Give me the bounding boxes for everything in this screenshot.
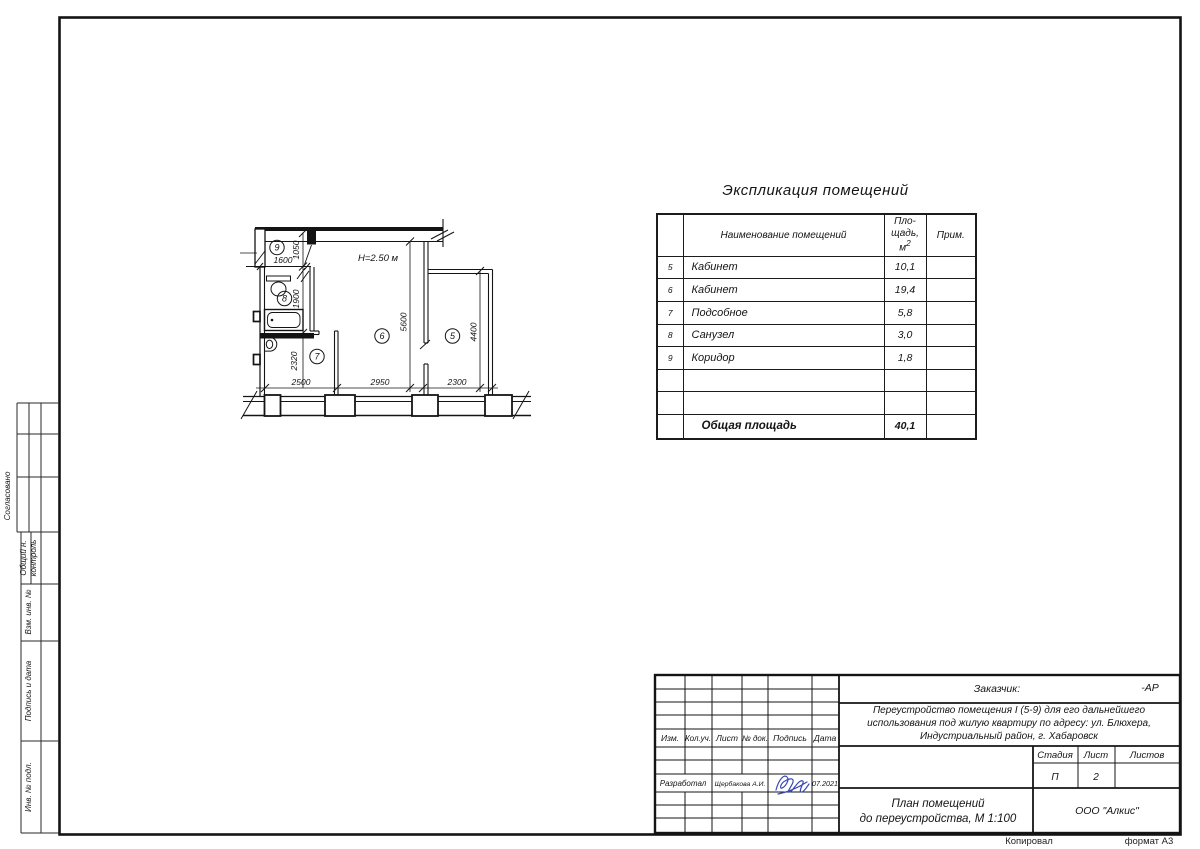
- room-label-9: 9: [274, 243, 279, 253]
- total-area: 40,1: [884, 414, 926, 439]
- general-control-label-2: контроль: [29, 540, 38, 577]
- sheet-linework: Согласовано Общий н. контроль Взм. инв. …: [0, 0, 1200, 849]
- title-block: Заказчик: -АР Переустройство помещения I…: [655, 675, 1180, 833]
- sheets-label: Листов: [1129, 750, 1165, 761]
- dim-2500: 2500: [291, 377, 311, 387]
- project-line-2: использования под жилую квартиру по адре…: [867, 718, 1151, 729]
- table-row: [657, 391, 976, 414]
- header-note-cell: Прим.: [926, 214, 976, 256]
- floor-plan: 9 8 7 6 5 Н=2.50 м 1600 2500 2950 2300 1…: [238, 208, 538, 428]
- door-leaf: [304, 245, 312, 266]
- replace-inv-label: Взм. инв. №: [24, 589, 33, 634]
- dim-2320: 2320: [289, 351, 299, 371]
- drawing-sheet: Согласовано Общий н. контроль Взм. инв. …: [0, 0, 1200, 849]
- company-name: ООО "Алкис": [1075, 805, 1140, 817]
- explication-title: Экспликация помещений: [656, 182, 975, 199]
- height-note: Н=2.50 м: [358, 253, 399, 264]
- col-ndok: № док.: [742, 734, 768, 743]
- dim-2950: 2950: [370, 377, 390, 387]
- col-list: Лист: [715, 733, 738, 743]
- project-line-3: Индустриальный район, г. Хабаровск: [920, 730, 1099, 742]
- break-mark-top: [431, 230, 448, 239]
- dim-1900: 1900: [291, 289, 301, 308]
- room-label-5: 5: [450, 331, 456, 341]
- dim-2300: 2300: [447, 377, 467, 387]
- table-row: 7 Подсобное 5,8: [657, 301, 976, 324]
- wall-stub: [308, 231, 316, 244]
- doc-title-line-1: План помещений: [891, 798, 985, 810]
- col-podpis: Подпись: [773, 733, 807, 743]
- wall-left-upper: [255, 229, 265, 267]
- dim-4400: 4400: [469, 322, 479, 341]
- wall-pilaster: [254, 312, 261, 322]
- developed-name: Щербакова А.И.: [715, 780, 766, 788]
- total-row: Общая площадь 40,1: [657, 414, 976, 439]
- room-label-7: 7: [314, 352, 320, 362]
- inv-orig-label: Инв. № подл.: [24, 762, 33, 812]
- wall-pier: [265, 395, 281, 416]
- total-label: Общая площадь: [683, 414, 884, 439]
- header-num-cell: [657, 214, 683, 256]
- header-area-cell: Пло- щадь, м2: [884, 214, 926, 256]
- table-row: 6 Кабинет 19,4: [657, 278, 976, 301]
- customer-value: -АР: [1141, 682, 1159, 694]
- wall-pilaster: [254, 355, 261, 365]
- room-label-6: 6: [379, 331, 384, 341]
- col-izm: Изм.: [661, 733, 679, 743]
- sign-date-label: Подпись и дата: [24, 660, 33, 721]
- customer-label: Заказчик:: [974, 683, 1020, 695]
- explication-header-row: Наименование помещений Пло- щадь, м2 При…: [657, 214, 976, 256]
- sheet-value: 2: [1092, 772, 1099, 783]
- dim-1600: 1600: [274, 255, 293, 265]
- signature: [776, 776, 809, 794]
- project-line-1: Переустройство помещения I (5-9) для его…: [873, 705, 1146, 716]
- approved-label: Согласовано: [3, 471, 12, 520]
- col-data: Дата: [813, 733, 837, 743]
- header-name-cell: Наименование помещений: [683, 214, 884, 256]
- sheet-label: Лист: [1083, 750, 1109, 761]
- dim-5600: 5600: [399, 312, 409, 331]
- wall-pier: [412, 395, 438, 416]
- table-row: [657, 369, 976, 391]
- format-label: формат А3: [1120, 836, 1178, 847]
- doc-title-line-2: до переустройства, М 1:100: [860, 813, 1017, 825]
- table-row: 5 Кабинет 10,1: [657, 256, 976, 278]
- washbasin-icon: [265, 338, 277, 352]
- bathtub-icon: [265, 310, 304, 331]
- developed-date: 07.2021: [812, 779, 838, 788]
- wall-pier: [325, 395, 355, 416]
- developed-label: Разработал: [660, 779, 707, 788]
- stage-value: П: [1051, 772, 1059, 783]
- explication-table: Наименование помещений Пло- щадь, м2 При…: [656, 213, 977, 440]
- table-row: 8 Санузел 3,0: [657, 324, 976, 346]
- col-koluch: Кол.уч.: [685, 734, 711, 743]
- table-row: 9 Коридор 1,8: [657, 346, 976, 369]
- general-control-label-1: Общий н.: [19, 540, 28, 575]
- copied-label: Копировал: [1003, 836, 1055, 847]
- dim-1050: 1050: [291, 240, 301, 259]
- wall-pier: [485, 395, 512, 416]
- stage-label: Стадия: [1037, 750, 1073, 761]
- room-label-8: 8: [282, 294, 287, 304]
